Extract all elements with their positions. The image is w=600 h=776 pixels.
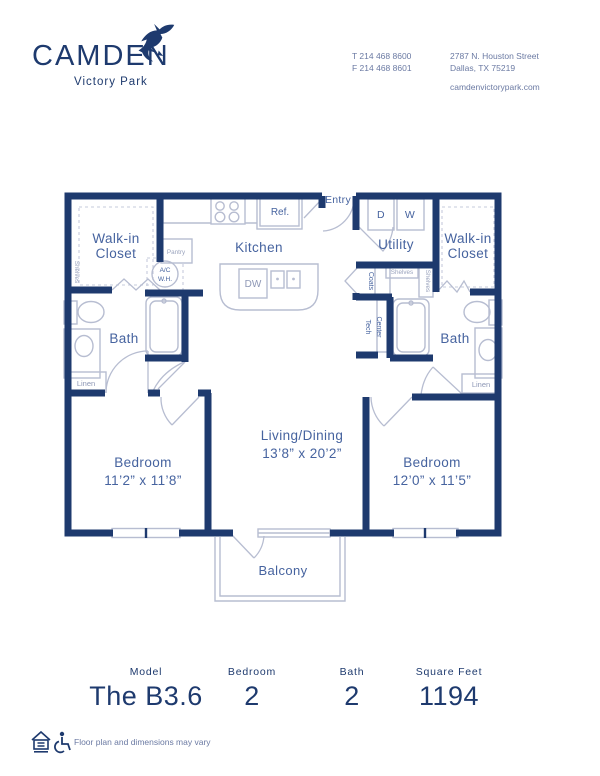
shelves-label-hall: Shelves: [424, 270, 431, 292]
equal-housing-icon: [30, 730, 52, 754]
small-labels: Pantry A/C W.H. Linen Linen Coats Tech C…: [73, 249, 490, 389]
shelves-label-closet1: Shelves: [73, 261, 80, 283]
pantry-label: Pantry: [167, 249, 186, 256]
bedroom1-label: Bedroom: [114, 455, 172, 470]
bath-left-label: Bath: [109, 331, 138, 346]
entry-label: Entry: [325, 194, 351, 206]
bedroom1-dims: 11’2” x 11’8”: [104, 473, 182, 488]
disclaimer-text: Floor plan and dimensions may vary: [74, 737, 211, 747]
wh-label: W.H.: [158, 276, 172, 283]
walkin-closet-left-label2: Closet: [96, 246, 137, 261]
dw-label: DW: [245, 279, 262, 290]
bathtub: [393, 299, 429, 356]
door-swing: [371, 397, 412, 426]
washer-label: W: [405, 209, 415, 221]
coats-label: Coats: [367, 272, 374, 291]
toilet-bowl: [464, 302, 490, 323]
door-swing: [153, 362, 185, 391]
dryer-label: D: [377, 209, 385, 221]
bedroom2-label: Bedroom: [403, 455, 461, 470]
walkin-closet-left-label: Walk-in: [92, 231, 139, 246]
walkin-closet-right-label: Walk-in: [444, 231, 491, 246]
windows: [112, 528, 458, 538]
ac-label: A/C: [160, 267, 171, 274]
stat-sqft-value: 1194: [379, 681, 519, 712]
tech-center-label2: Center: [375, 316, 382, 338]
door-swing: [106, 351, 148, 393]
stat-sqft-label: Square Feet: [379, 666, 519, 678]
living-dining-dims: 13’8” x 20’2”: [262, 446, 342, 461]
floorplan-sheet: CAMDEN Victory Park T 214 468 8600 F 214…: [0, 0, 600, 776]
toilet-bowl: [78, 302, 104, 323]
linen-right-label: Linen: [472, 380, 490, 389]
door-swing: [421, 367, 462, 395]
ref-label: Ref.: [271, 207, 289, 218]
utility-label: Utility: [378, 237, 414, 252]
ac-water-heater: [152, 261, 178, 287]
bifold-door: [345, 267, 358, 295]
linen-left-label: Linen: [77, 379, 95, 388]
shelves-label-utility: Shelves: [391, 269, 413, 276]
living-dining-label: Living/Dining: [261, 428, 344, 443]
bedroom2-dims: 12’0” x 11’5”: [393, 473, 472, 488]
vanity-sink: [75, 336, 93, 357]
walkin-closet-right-label2: Closet: [448, 246, 489, 261]
floor-plan: Walk-in Closet Kitchen Entry Utility D W…: [0, 0, 600, 776]
tech-center-label: Tech: [364, 320, 371, 335]
balcony-label: Balcony: [258, 563, 307, 578]
kitchen-island: [220, 264, 318, 310]
kitchen-label: Kitchen: [235, 240, 283, 255]
door-swing: [161, 397, 199, 425]
accessibility-icon: [52, 730, 72, 754]
room-labels: Walk-in Closet Kitchen Entry Utility D W…: [92, 194, 491, 578]
bath2-fixtures: [393, 299, 502, 393]
vanity-sink: [479, 340, 497, 361]
bathtub: [146, 297, 182, 356]
bath-right-label: Bath: [440, 331, 469, 346]
stat-sqft: Square Feet 1194: [379, 666, 519, 712]
